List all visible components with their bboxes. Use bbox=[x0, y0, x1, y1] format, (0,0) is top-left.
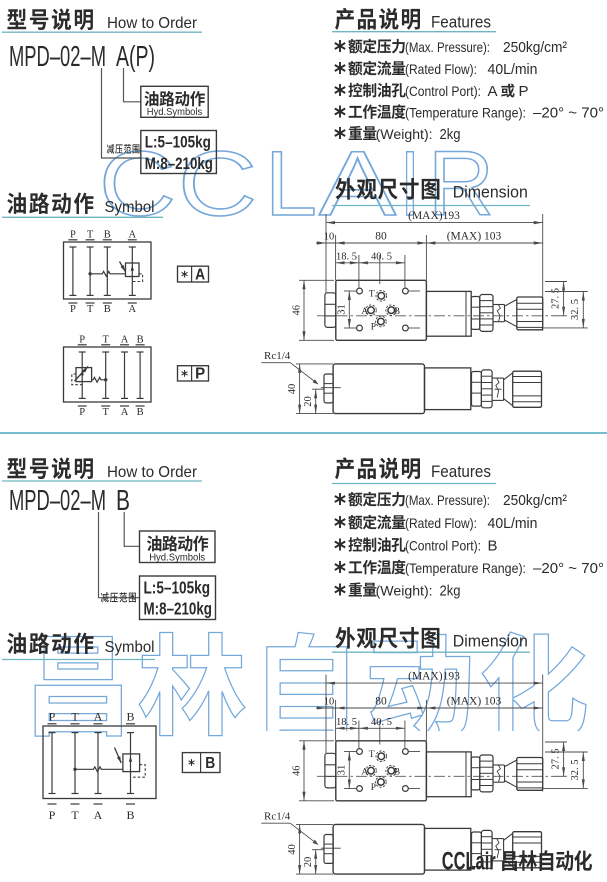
svg-text:P: P bbox=[49, 808, 56, 822]
svg-text:A: A bbox=[361, 768, 368, 778]
svg-text:(Control Port):: (Control Port): bbox=[405, 538, 481, 554]
svg-text:(Weight):: (Weight): bbox=[376, 126, 433, 142]
svg-text:A: A bbox=[488, 83, 498, 100]
svg-text:A: A bbox=[129, 230, 137, 241]
svg-text:MPD–02–M: MPD–02–M bbox=[9, 41, 106, 73]
svg-text:46: 46 bbox=[292, 305, 303, 316]
svg-text:How to Order: How to Order bbox=[107, 15, 198, 32]
svg-text:MPD–02–M: MPD–02–M bbox=[9, 485, 106, 517]
svg-text:T: T bbox=[369, 290, 375, 300]
svg-text:40. 5: 40. 5 bbox=[371, 251, 392, 262]
svg-text:Rc1/4: Rc1/4 bbox=[264, 811, 291, 823]
svg-text:18. 5: 18. 5 bbox=[336, 717, 357, 728]
svg-text:B: B bbox=[394, 768, 400, 778]
svg-text:L:5–105kg: L:5–105kg bbox=[145, 133, 211, 152]
svg-text:10: 10 bbox=[324, 697, 335, 708]
svg-text:P: P bbox=[371, 783, 376, 793]
svg-text:40: 40 bbox=[287, 844, 298, 855]
svg-text:18. 5: 18. 5 bbox=[336, 251, 357, 262]
svg-text:–20° ~ 70°: –20° ~ 70° bbox=[533, 105, 604, 122]
svg-text:L:5–105kg: L:5–105kg bbox=[144, 577, 211, 597]
svg-text:A: A bbox=[195, 266, 205, 283]
svg-text:31: 31 bbox=[337, 304, 348, 315]
svg-text:40L/min: 40L/min bbox=[488, 61, 538, 78]
svg-text:M:8–210kg: M:8–210kg bbox=[145, 154, 213, 173]
svg-text:B: B bbox=[137, 407, 144, 418]
svg-text:T: T bbox=[87, 230, 94, 241]
svg-text:Hyd.Symbols: Hyd.Symbols bbox=[147, 106, 202, 118]
svg-text:P: P bbox=[49, 710, 56, 724]
svg-text:P: P bbox=[70, 230, 76, 241]
svg-text:P: P bbox=[371, 323, 376, 333]
svg-text:32. 5: 32. 5 bbox=[570, 760, 581, 781]
svg-text:A: A bbox=[361, 307, 368, 317]
svg-text:2kg: 2kg bbox=[440, 583, 461, 600]
svg-text:32. 5: 32. 5 bbox=[570, 299, 581, 320]
svg-text:P: P bbox=[79, 407, 85, 418]
svg-text:10: 10 bbox=[324, 232, 335, 243]
svg-text:Dimension: Dimension bbox=[453, 184, 528, 202]
svg-text:(Rated Flow):: (Rated Flow): bbox=[405, 61, 477, 77]
svg-text:P: P bbox=[195, 366, 205, 383]
svg-text:A: A bbox=[94, 808, 103, 822]
svg-text:T: T bbox=[102, 407, 109, 418]
svg-text:T: T bbox=[102, 335, 109, 346]
svg-text:How to Order: How to Order bbox=[107, 464, 198, 481]
svg-text:B: B bbox=[104, 304, 111, 315]
svg-text:(Max. Pressure):: (Max. Pressure): bbox=[405, 39, 490, 55]
svg-text:P: P bbox=[519, 83, 529, 100]
svg-text:–20° ~ 70°: –20° ~ 70° bbox=[533, 560, 604, 577]
svg-text:T: T bbox=[71, 710, 79, 724]
svg-text:Features: Features bbox=[431, 14, 491, 32]
svg-text:250kg/cm²: 250kg/cm² bbox=[503, 39, 567, 56]
svg-text:31: 31 bbox=[337, 765, 348, 776]
svg-text:80: 80 bbox=[375, 696, 387, 708]
svg-text:Features: Features bbox=[431, 463, 491, 481]
svg-text:B: B bbox=[205, 755, 215, 772]
svg-text:P: P bbox=[79, 335, 85, 346]
svg-text:B: B bbox=[116, 485, 130, 517]
svg-text:Hyd.Symbols: Hyd.Symbols bbox=[149, 551, 205, 563]
svg-text:(Temperature Range):: (Temperature Range): bbox=[405, 560, 526, 576]
svg-text:A: A bbox=[121, 335, 129, 346]
svg-text:(MAX)193: (MAX)193 bbox=[408, 210, 460, 222]
svg-text:46: 46 bbox=[292, 766, 303, 777]
svg-text:80: 80 bbox=[375, 231, 387, 243]
svg-text:(Max. Pressure):: (Max. Pressure): bbox=[405, 492, 490, 508]
svg-text:B: B bbox=[126, 808, 134, 822]
svg-text:A(P): A(P) bbox=[116, 41, 155, 73]
svg-text:Symbol: Symbol bbox=[105, 199, 155, 216]
svg-text:M:8–210kg: M:8–210kg bbox=[144, 599, 213, 619]
svg-text:B: B bbox=[394, 307, 400, 317]
svg-text:B: B bbox=[137, 335, 144, 346]
svg-text:20: 20 bbox=[303, 396, 314, 407]
svg-text:(MAX) 103: (MAX) 103 bbox=[447, 696, 502, 708]
svg-text:A: A bbox=[319, 133, 397, 235]
svg-text:40: 40 bbox=[287, 384, 298, 395]
svg-text:40. 5: 40. 5 bbox=[371, 717, 392, 728]
svg-text:(Temperature Range):: (Temperature Range): bbox=[405, 105, 526, 121]
svg-text:T: T bbox=[71, 808, 79, 822]
svg-text:(MAX) 103: (MAX) 103 bbox=[447, 231, 502, 243]
svg-text:A: A bbox=[94, 710, 103, 724]
svg-text:T: T bbox=[87, 304, 94, 315]
svg-text:CCLair: CCLair bbox=[442, 848, 496, 876]
svg-text:L: L bbox=[265, 133, 317, 235]
svg-text:A: A bbox=[129, 304, 137, 315]
svg-text:Dimension: Dimension bbox=[453, 633, 528, 651]
svg-text:(MAX)193: (MAX)193 bbox=[408, 671, 460, 683]
svg-text:B: B bbox=[104, 230, 111, 241]
svg-text:P: P bbox=[70, 304, 76, 315]
svg-text:Symbol: Symbol bbox=[105, 639, 155, 656]
svg-text:(Rated Flow):: (Rated Flow): bbox=[405, 515, 477, 531]
svg-text:B: B bbox=[488, 538, 498, 555]
svg-text:250kg/cm²: 250kg/cm² bbox=[503, 492, 567, 509]
svg-text:A: A bbox=[121, 407, 129, 418]
svg-text:Rc1/4: Rc1/4 bbox=[264, 350, 291, 362]
svg-text:2kg: 2kg bbox=[440, 126, 461, 143]
svg-text:T: T bbox=[369, 750, 375, 760]
svg-text:20: 20 bbox=[303, 857, 314, 868]
svg-text:40L/min: 40L/min bbox=[488, 515, 538, 532]
svg-text:(Control Port):: (Control Port): bbox=[405, 83, 481, 99]
svg-text:(Weight):: (Weight): bbox=[376, 583, 433, 599]
svg-text:B: B bbox=[126, 710, 134, 724]
